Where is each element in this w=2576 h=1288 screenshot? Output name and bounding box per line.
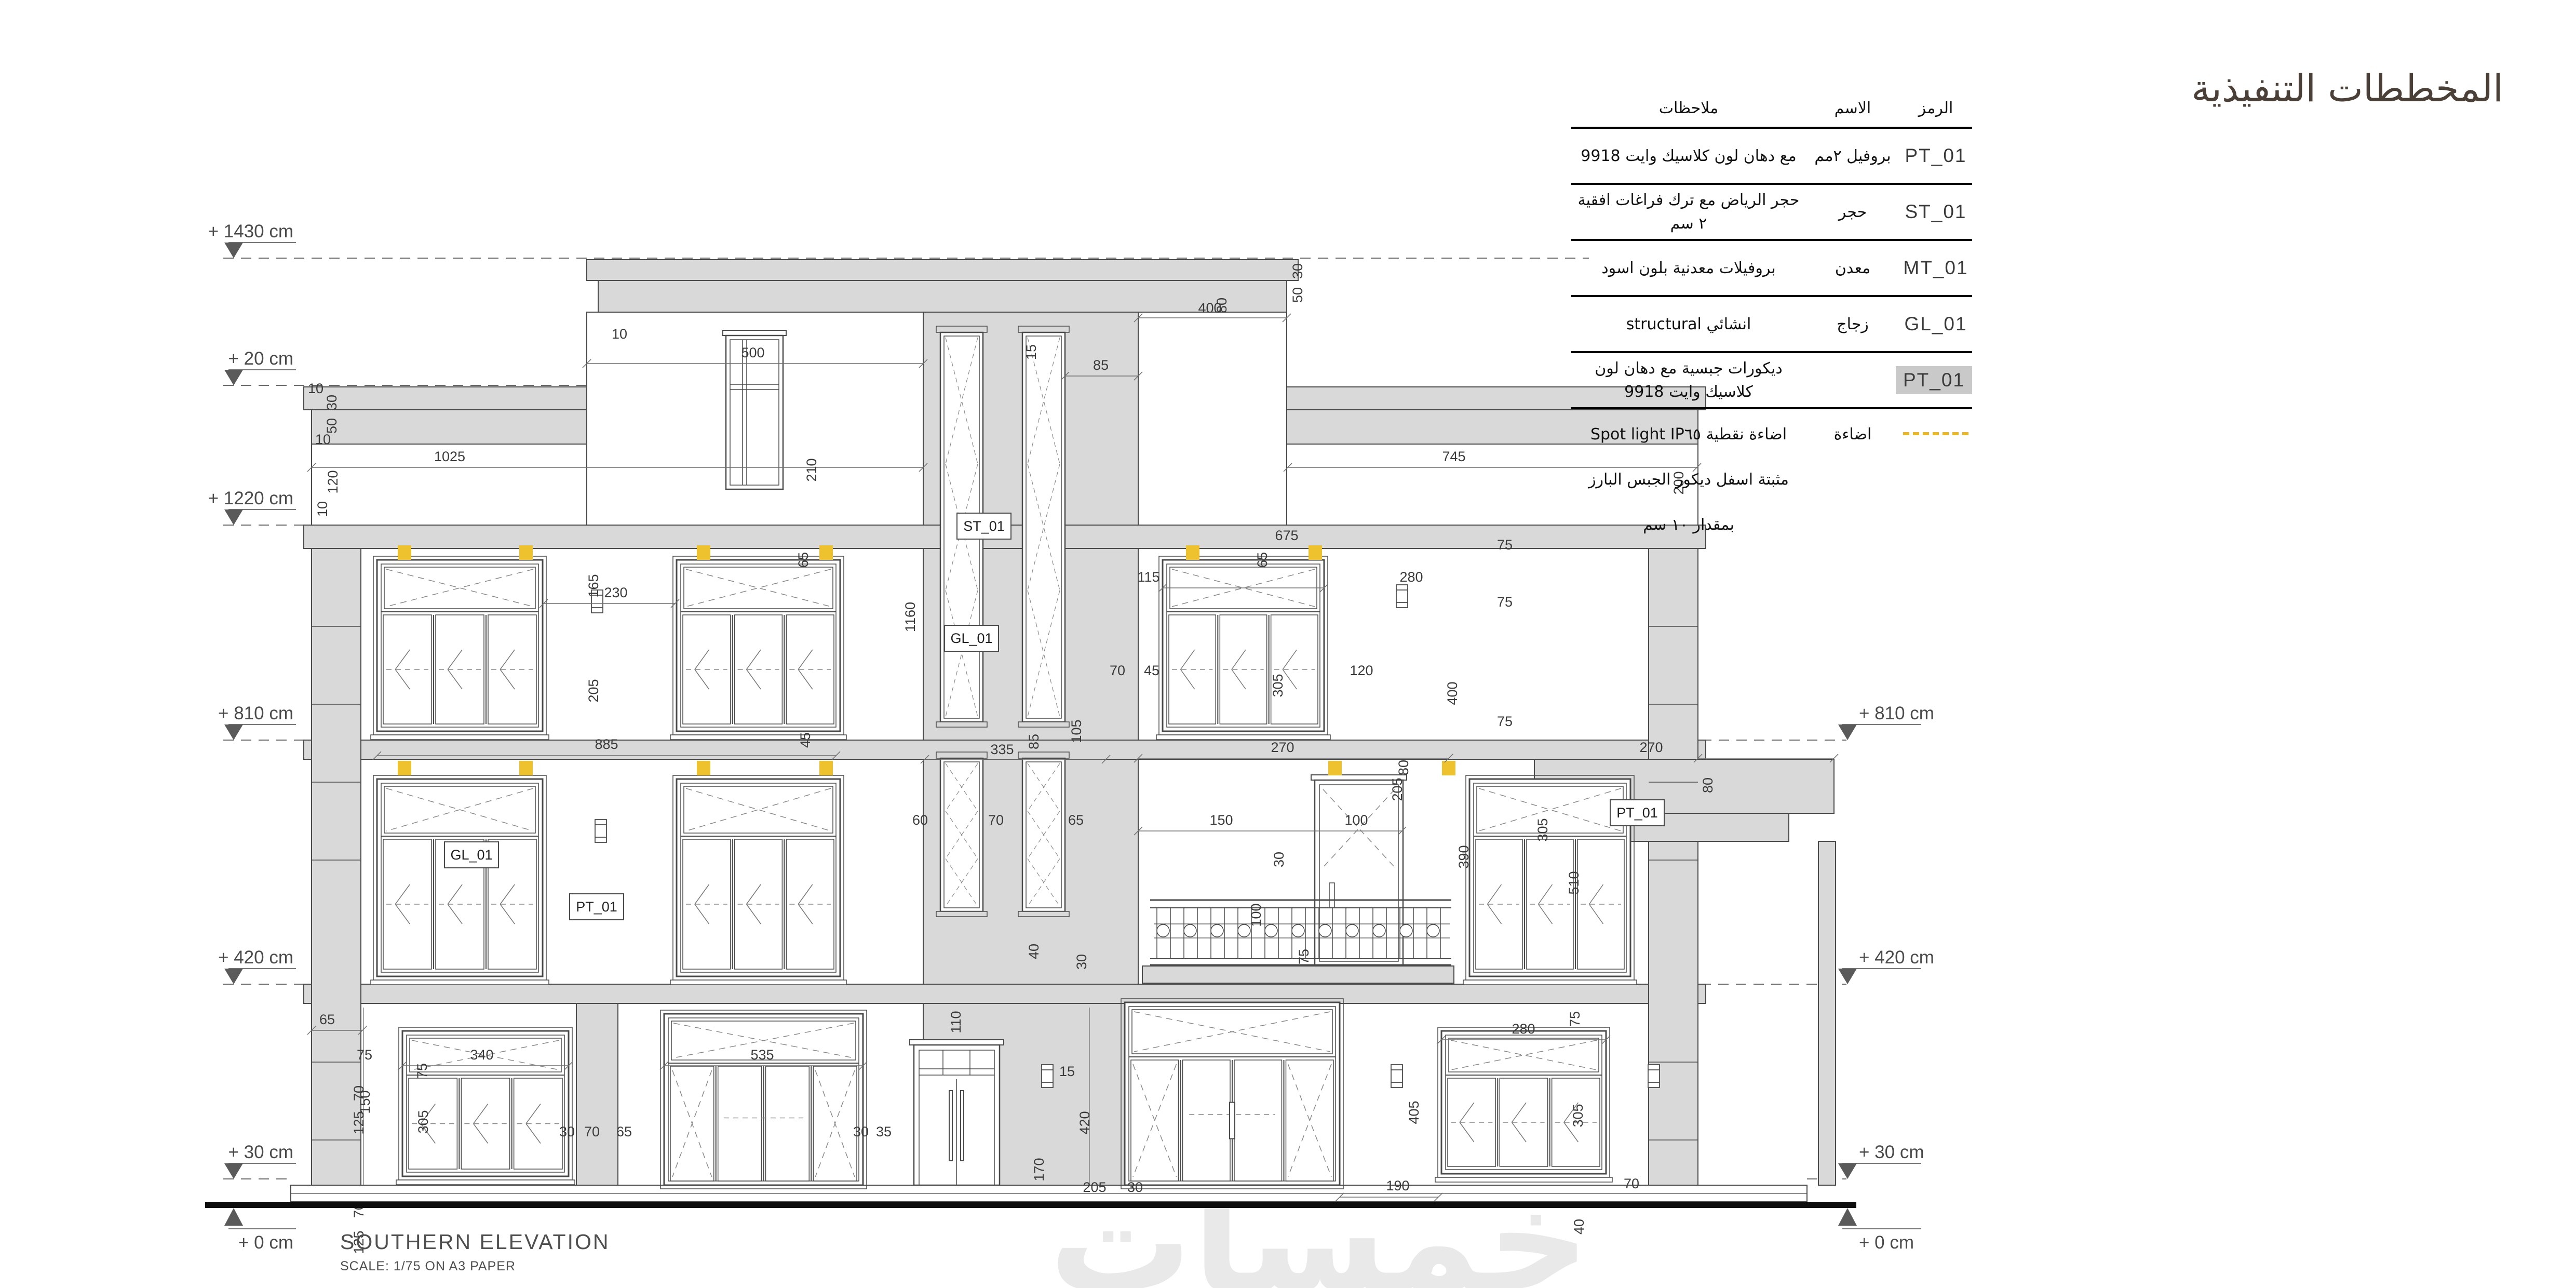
dimension-label: 30 xyxy=(1127,1179,1143,1195)
material-notes: مع دهان لون كلاسيك وايت 9918 xyxy=(1571,144,1806,168)
svg-text:PT_01: PT_01 xyxy=(576,899,617,915)
dimension-label: 10 xyxy=(612,326,627,342)
spotlight-icon xyxy=(398,545,411,560)
dimension-label: 30 xyxy=(853,1124,869,1139)
dimension-label: 75 xyxy=(357,1047,372,1063)
dimension-label: 70 xyxy=(1110,663,1125,678)
svg-text:+ 20 cm: + 20 cm xyxy=(228,348,293,369)
material-name: حجر xyxy=(1806,200,1899,224)
spotlight-icon xyxy=(1328,761,1342,775)
dimension-label: 70 xyxy=(584,1124,600,1139)
dimension-label: 50 xyxy=(1290,287,1305,303)
material-tag: PT_01 xyxy=(570,894,624,920)
door-window xyxy=(1121,999,1343,1189)
legend-header-code: الرمز xyxy=(1899,97,1972,120)
level-marker: + 30 cm xyxy=(224,1142,296,1179)
dimension-label: 190 xyxy=(1386,1178,1409,1193)
level-marker: + 420 cm xyxy=(218,947,296,984)
legend-row: اضاءةاضاءة نقطية Spot light IP٦٥مثبتة اس… xyxy=(1571,409,1972,558)
dimension-label: 40 xyxy=(1026,944,1042,959)
spotlight-icon xyxy=(1186,545,1199,560)
drawing-title: SOUTHERN ELEVATION xyxy=(340,1230,610,1254)
level-marker: + 1220 cm xyxy=(208,488,296,525)
sconce-icon xyxy=(1396,585,1408,608)
dimension-label: 405 xyxy=(1406,1101,1422,1124)
spotlight-icon xyxy=(519,545,533,560)
dimension-label: 500 xyxy=(741,345,764,360)
dimension-label: 65 xyxy=(1255,552,1270,568)
dimension-label: 165 xyxy=(586,574,601,597)
dimension-label: 75 xyxy=(1497,594,1513,610)
dimension-label: 10 xyxy=(315,501,330,517)
dimension-label: 280 xyxy=(1512,1021,1535,1037)
dimension-label: 100 xyxy=(1248,903,1264,927)
dimension-label: 30 xyxy=(1290,263,1305,279)
dimension-label: 75 xyxy=(1497,714,1513,729)
window xyxy=(371,556,549,740)
dimension-label: 270 xyxy=(1271,740,1294,755)
svg-text:+ 1430 cm: + 1430 cm xyxy=(208,221,293,242)
material-code: GL_01 xyxy=(1899,313,1972,335)
dimension-label: 745 xyxy=(1442,449,1465,464)
level-marker: + 20 cm xyxy=(224,348,296,385)
material-tag: ST_01 xyxy=(957,513,1011,539)
sconce-icon xyxy=(1648,1065,1660,1088)
dimension-label: 280 xyxy=(1399,569,1423,585)
material-code: PT_01 xyxy=(1899,366,1972,394)
material-code: ST_01 xyxy=(1899,201,1972,223)
dimension-label: 40 xyxy=(1571,1219,1587,1235)
tower-narrow-window xyxy=(1018,752,1069,917)
dimension-label: 30 xyxy=(1271,852,1287,867)
material-code: MT_01 xyxy=(1899,257,1972,279)
dimension-label: 65 xyxy=(616,1124,632,1139)
dimension-label: 390 xyxy=(1456,845,1472,868)
tower-narrow-window xyxy=(1018,326,1069,727)
spotlight-icon xyxy=(1442,761,1455,775)
level-marker: + 1430 cm xyxy=(208,221,296,258)
window xyxy=(1156,556,1330,740)
elevation-drawing: 1050040030508015851052101025745200116010… xyxy=(0,0,2576,1288)
dimension-label: 80 xyxy=(1700,777,1716,793)
dimension-label: 85 xyxy=(1093,357,1109,373)
svg-text:+ 420 cm: + 420 cm xyxy=(1859,947,1934,968)
dimension-label: 170 xyxy=(1031,1158,1047,1181)
dimension-label: 30 xyxy=(559,1124,575,1139)
dimension-label: 885 xyxy=(595,736,618,752)
dimension-label: 115 xyxy=(1137,569,1159,585)
level-marker: + 810 cm xyxy=(218,703,296,740)
level-marker: + 0 cm xyxy=(1838,1208,1921,1253)
material-name: اضاءة xyxy=(1806,423,1899,446)
dimension-label: 340 xyxy=(470,1047,493,1063)
material-tag: GL_01 xyxy=(945,625,999,651)
legend-header-name: الاسم xyxy=(1806,97,1899,120)
dimension-label: 305 xyxy=(415,1110,431,1133)
door-window xyxy=(660,1010,867,1189)
dimension-label: 335 xyxy=(990,742,1014,757)
dimension-label: 75 xyxy=(1567,1011,1583,1027)
svg-text:PT_01: PT_01 xyxy=(1616,805,1658,821)
svg-text:+ 30 cm: + 30 cm xyxy=(228,1142,293,1162)
legend-header-notes: ملاحظات xyxy=(1571,97,1806,120)
dimension-label: 30 xyxy=(1074,954,1089,970)
dimension-label: 535 xyxy=(750,1047,774,1063)
svg-text:ST_01: ST_01 xyxy=(963,518,1005,534)
dimension-label: 15 xyxy=(1059,1064,1075,1079)
dimension-label: 70 xyxy=(351,1085,367,1101)
svg-text:+ 810 cm: + 810 cm xyxy=(218,703,293,723)
svg-text:+ 1220 cm: + 1220 cm xyxy=(208,488,293,508)
dimension-label: 100 xyxy=(1344,812,1368,828)
spotlight-icon xyxy=(519,761,533,775)
sconce-icon xyxy=(595,820,606,842)
drawing-scale: SCALE: 1/75 ON A3 PAPER xyxy=(340,1259,516,1274)
dimension-label: 45 xyxy=(798,732,813,748)
svg-text:+ 0 cm: + 0 cm xyxy=(1859,1232,1914,1253)
svg-text:+ 30 cm: + 30 cm xyxy=(1859,1142,1924,1162)
legend-row: PT_01ديكورات جبسية مع دهان لون كلاسيك وا… xyxy=(1571,353,1972,409)
legend-table: الرمزالاسمملاحظاتPT_01بروفيل ٢مممع دهان … xyxy=(1571,89,1972,558)
sconce-icon xyxy=(1391,1065,1402,1088)
dimension-label: 1025 xyxy=(434,449,465,464)
legend-row: PT_01بروفيل ٢مممع دهان لون كلاسيك وايت 9… xyxy=(1571,129,1972,185)
dimension-label: 1160 xyxy=(902,602,918,632)
level-marker: + 420 cm xyxy=(1838,947,1934,984)
dimension-label: 125 xyxy=(351,1111,367,1134)
window xyxy=(670,775,846,985)
dimension-label: 80 xyxy=(1396,760,1411,775)
window xyxy=(371,775,549,985)
dimension-label: 70 xyxy=(1624,1176,1639,1191)
page: المخططات التنفيذية الرمزالاسمملاحظاتPT_0… xyxy=(0,0,2576,1288)
legend-header: الرمزالاسمملاحظات xyxy=(1571,89,1972,129)
dimension-label: 80 xyxy=(1214,298,1230,313)
level-marker: + 0 cm xyxy=(224,1208,296,1253)
spotlight-icon xyxy=(819,545,833,560)
dimension-label: 510 xyxy=(1566,871,1582,894)
dimension-label: 85 xyxy=(1026,734,1042,749)
spotlight-icon xyxy=(1309,545,1322,560)
dimension-label: 230 xyxy=(604,585,627,600)
dimension-label: 30 xyxy=(324,395,340,410)
dimension-label: 60 xyxy=(912,812,928,828)
balcony-door xyxy=(1311,775,1407,966)
material-tag: GL_01 xyxy=(444,842,498,868)
dimension-label: 120 xyxy=(325,470,341,493)
dimension-label: 10 xyxy=(315,432,331,447)
dimension-label: 35 xyxy=(876,1124,892,1139)
material-tag: PT_01 xyxy=(1610,800,1664,826)
spotlight-icon xyxy=(819,761,833,775)
dimension-label: 105 xyxy=(1069,719,1084,743)
dimension-label: 70 xyxy=(988,812,1004,828)
dimension-label: 205 xyxy=(1083,1179,1106,1195)
svg-text:+ 0 cm: + 0 cm xyxy=(238,1232,293,1253)
sconce-icon xyxy=(1042,1065,1053,1088)
svg-text:GL_01: GL_01 xyxy=(950,630,992,646)
dimension-label: 110 xyxy=(948,1011,964,1033)
dimension-label: 400 xyxy=(1445,681,1460,705)
material-code: PT_01 xyxy=(1899,145,1972,167)
material-notes: اضاءة نقطية Spot light IP٦٥مثبتة اسفل دي… xyxy=(1571,423,1806,558)
dimension-label: 150 xyxy=(1209,812,1233,828)
dimension-label: 420 xyxy=(1077,1111,1093,1134)
dimension-label: 210 xyxy=(804,458,819,481)
material-notes: ديكورات جبسية مع دهان لون كلاسيك وايت 99… xyxy=(1571,357,1806,404)
material-notes: حجر الرياض مع ترك فراغات افقية ٢ سم xyxy=(1571,189,1806,235)
dimension-label: 65 xyxy=(795,552,811,568)
spotlight-icon xyxy=(697,545,710,560)
level-marker: + 30 cm xyxy=(1838,1142,1924,1179)
material-name: زجاج xyxy=(1806,313,1899,336)
dimension-label: 305 xyxy=(1270,674,1286,697)
material-name: بروفيل ٢مم xyxy=(1806,144,1899,168)
legend-row: MT_01معدنبروفيلات معدنية بلون اسود xyxy=(1571,241,1972,297)
dimension-label: 45 xyxy=(1144,663,1159,678)
material-notes: انشائي structural xyxy=(1571,313,1806,336)
dimension-label: 15 xyxy=(1023,344,1039,360)
dimension-label: 205 xyxy=(586,679,601,702)
dimension-label: 75 xyxy=(414,1063,430,1079)
ground-line xyxy=(205,1202,1856,1208)
svg-text:+ 420 cm: + 420 cm xyxy=(218,947,293,968)
svg-text:GL_01: GL_01 xyxy=(450,847,492,863)
lighting-dashed-icon xyxy=(1899,423,1972,437)
legend-row: GL_01زجاجانشائي structural xyxy=(1571,297,1972,353)
dimension-label: 65 xyxy=(1068,812,1084,828)
legend-row: ST_01حجرحجر الرياض مع ترك فراغات افقية ٢… xyxy=(1571,185,1972,241)
dimension-label: 675 xyxy=(1275,528,1298,543)
material-name: معدن xyxy=(1806,257,1899,280)
entrance-door xyxy=(910,1040,1004,1185)
material-notes: بروفيلات معدنية بلون اسود xyxy=(1571,257,1806,280)
dimension-label: 65 xyxy=(319,1012,335,1027)
dimension-label: 75 xyxy=(1296,949,1312,964)
svg-text:+ 810 cm: + 810 cm xyxy=(1859,703,1934,723)
spotlight-icon xyxy=(697,761,710,775)
dimension-label: 75 xyxy=(1497,537,1513,553)
dimension-label: 205 xyxy=(1390,777,1405,801)
window xyxy=(670,556,846,740)
dimension-label: 305 xyxy=(1570,1104,1586,1127)
dimension-label: 10 xyxy=(308,381,323,396)
level-marker: + 810 cm xyxy=(1838,703,1934,740)
dimension-label: 270 xyxy=(1639,740,1663,755)
tower-narrow-window xyxy=(936,752,987,917)
spotlight-icon xyxy=(398,761,411,775)
dimension-label: 120 xyxy=(1350,663,1373,678)
dimension-label: 305 xyxy=(1535,818,1550,841)
